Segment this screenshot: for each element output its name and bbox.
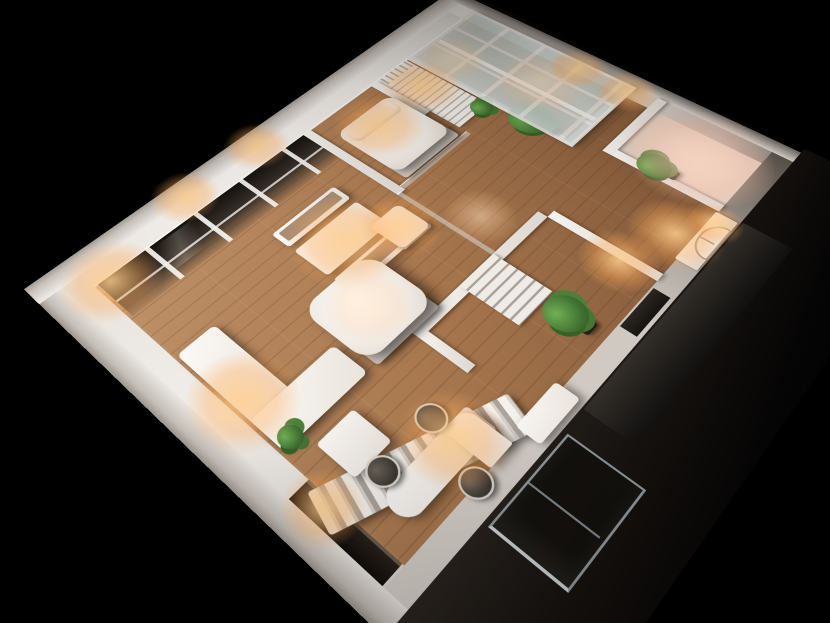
- apartment-plan: [62, 4, 793, 610]
- render-canvas: [0, 0, 830, 623]
